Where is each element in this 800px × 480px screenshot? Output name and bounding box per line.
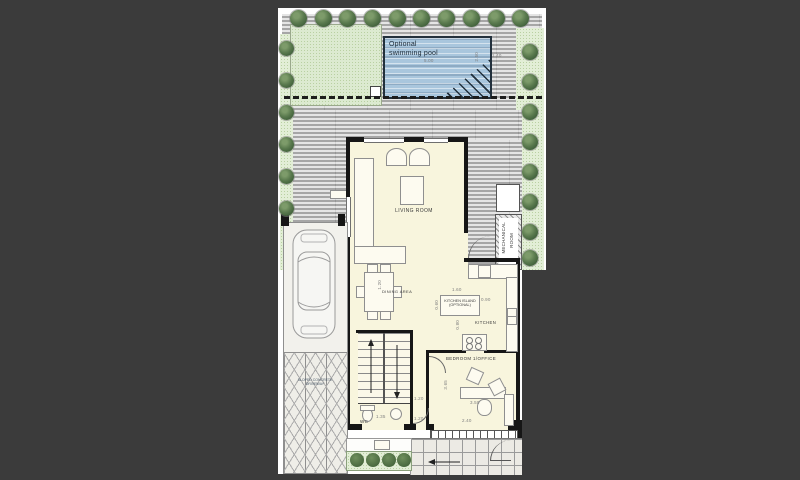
sink-bowl-2 — [507, 316, 517, 325]
island-d-dim: 0.90 — [481, 297, 491, 302]
cooktop — [462, 334, 487, 351]
burner-4 — [475, 343, 482, 350]
tree-icon — [463, 10, 480, 27]
island-w-dim: 1.60 — [452, 287, 462, 292]
bush-icon — [366, 453, 380, 467]
coffee-table — [400, 176, 424, 205]
lawn — [290, 24, 382, 106]
wall-top-2 — [404, 137, 424, 142]
carport-post-left — [281, 214, 289, 226]
tree-icon — [290, 10, 307, 27]
wc-sink — [390, 408, 402, 420]
living-room-label: LIVING ROOM — [382, 208, 446, 214]
island-c1-dim: 0.60 — [434, 300, 439, 310]
tree-icon — [339, 10, 356, 27]
tree-icon — [512, 10, 529, 27]
island-label-2: (OPTIONAL) — [441, 303, 479, 307]
doormat — [374, 440, 390, 450]
tree-icon — [438, 10, 455, 27]
dining-chair-5 — [356, 286, 365, 298]
tree-icon — [364, 10, 381, 27]
tree-icon — [522, 250, 538, 266]
dining-chair-2 — [380, 264, 391, 273]
tree-icon — [522, 104, 538, 120]
wc-partition — [358, 403, 410, 404]
armchair-2 — [409, 148, 430, 166]
wall-right-living — [464, 137, 468, 233]
tree-icon — [279, 73, 294, 88]
wc-label: WC — [360, 419, 368, 424]
fridge — [478, 265, 491, 278]
pool-label-line2: swimming pool — [389, 49, 438, 58]
bedroom-depth-dim: 3.65 — [443, 380, 448, 390]
wall-right-step — [464, 258, 520, 262]
tree-icon — [488, 10, 505, 27]
planter-box — [330, 190, 347, 199]
window-top-2 — [424, 138, 448, 143]
dining-label: DINING AREA — [382, 289, 412, 294]
tree-icon — [522, 74, 538, 90]
wall-bottom-2 — [404, 424, 416, 430]
driveway-label-line2: DRIVEWAY — [288, 382, 342, 386]
pool-label-line1: Optional — [389, 40, 438, 49]
tree-icon — [279, 41, 294, 56]
car-top-view — [289, 226, 339, 344]
floor-plan-sheet: Optional swimming pool 5.00 2.50 1.40 8.… — [278, 8, 546, 474]
wall-bottom-1 — [346, 424, 362, 430]
desk-dim: 3.50 — [470, 400, 480, 405]
armchair-1 — [386, 148, 407, 166]
pool-width-dim: 5.00 — [424, 58, 434, 63]
mechanical-room-label-1: MECHANICAL — [501, 222, 506, 254]
pool-label: Optional swimming pool — [389, 40, 438, 58]
bench — [504, 394, 514, 426]
equipment-pad — [496, 184, 520, 212]
burner-3 — [466, 343, 473, 350]
kitchen-label: KITCHEN — [475, 320, 496, 325]
toilet-tank — [360, 405, 375, 411]
driveway — [283, 352, 348, 474]
terrace-deck — [347, 110, 522, 140]
dining-chair-3 — [367, 311, 378, 320]
tree-icon — [522, 194, 538, 210]
stair-direction-arrow-icon — [358, 333, 410, 403]
carport-post-right — [338, 214, 345, 226]
dining-chair-1 — [367, 264, 378, 273]
hall-dim-a: 1.20 — [414, 396, 424, 401]
tree-icon — [522, 44, 538, 60]
walk-dim: 1.40 — [492, 53, 502, 58]
bedroom-width-dim: 2.40 — [462, 418, 472, 423]
tree-icon — [279, 105, 294, 120]
tree-icon — [279, 201, 294, 216]
tree-icon — [279, 169, 294, 184]
bush-icon — [382, 453, 396, 467]
tree-icon — [389, 10, 406, 27]
tree-icon — [279, 137, 294, 152]
side-deck-left — [293, 110, 347, 222]
tree-icon — [522, 134, 538, 150]
tree-icon — [522, 164, 538, 180]
roof-overhang-line — [284, 96, 542, 99]
tree-icon — [522, 224, 538, 240]
bush-icon — [350, 453, 364, 467]
mechanical-room-label-2: ROOM — [509, 233, 514, 248]
window-top-1 — [364, 138, 404, 143]
driveway-label: SLOPED CONCRETE DRIVEWAY — [288, 378, 342, 386]
dining-chair-4 — [380, 311, 391, 320]
island-c2-dim: 0.80 — [455, 320, 460, 330]
pool-steps — [442, 59, 490, 97]
sofa-seat — [354, 246, 406, 264]
screenshot-root: { "plan": { "pool": { "label_line1": "Op… — [0, 0, 800, 480]
staircase — [358, 333, 410, 403]
wall-bedroom-top — [426, 350, 466, 353]
tree-icon — [413, 10, 430, 27]
wall-left-upper — [346, 137, 350, 197]
bush-icon — [397, 453, 411, 467]
wc-dim: 1.35 — [376, 414, 386, 419]
tree-icon — [315, 10, 332, 27]
walkway-arrow-icon — [424, 456, 464, 468]
sofa-chaise — [354, 158, 374, 256]
pool-depth-dim: 2.50 — [474, 52, 479, 62]
kitchen-island: KITCHEN ISLAND (OPTIONAL) — [440, 295, 480, 316]
